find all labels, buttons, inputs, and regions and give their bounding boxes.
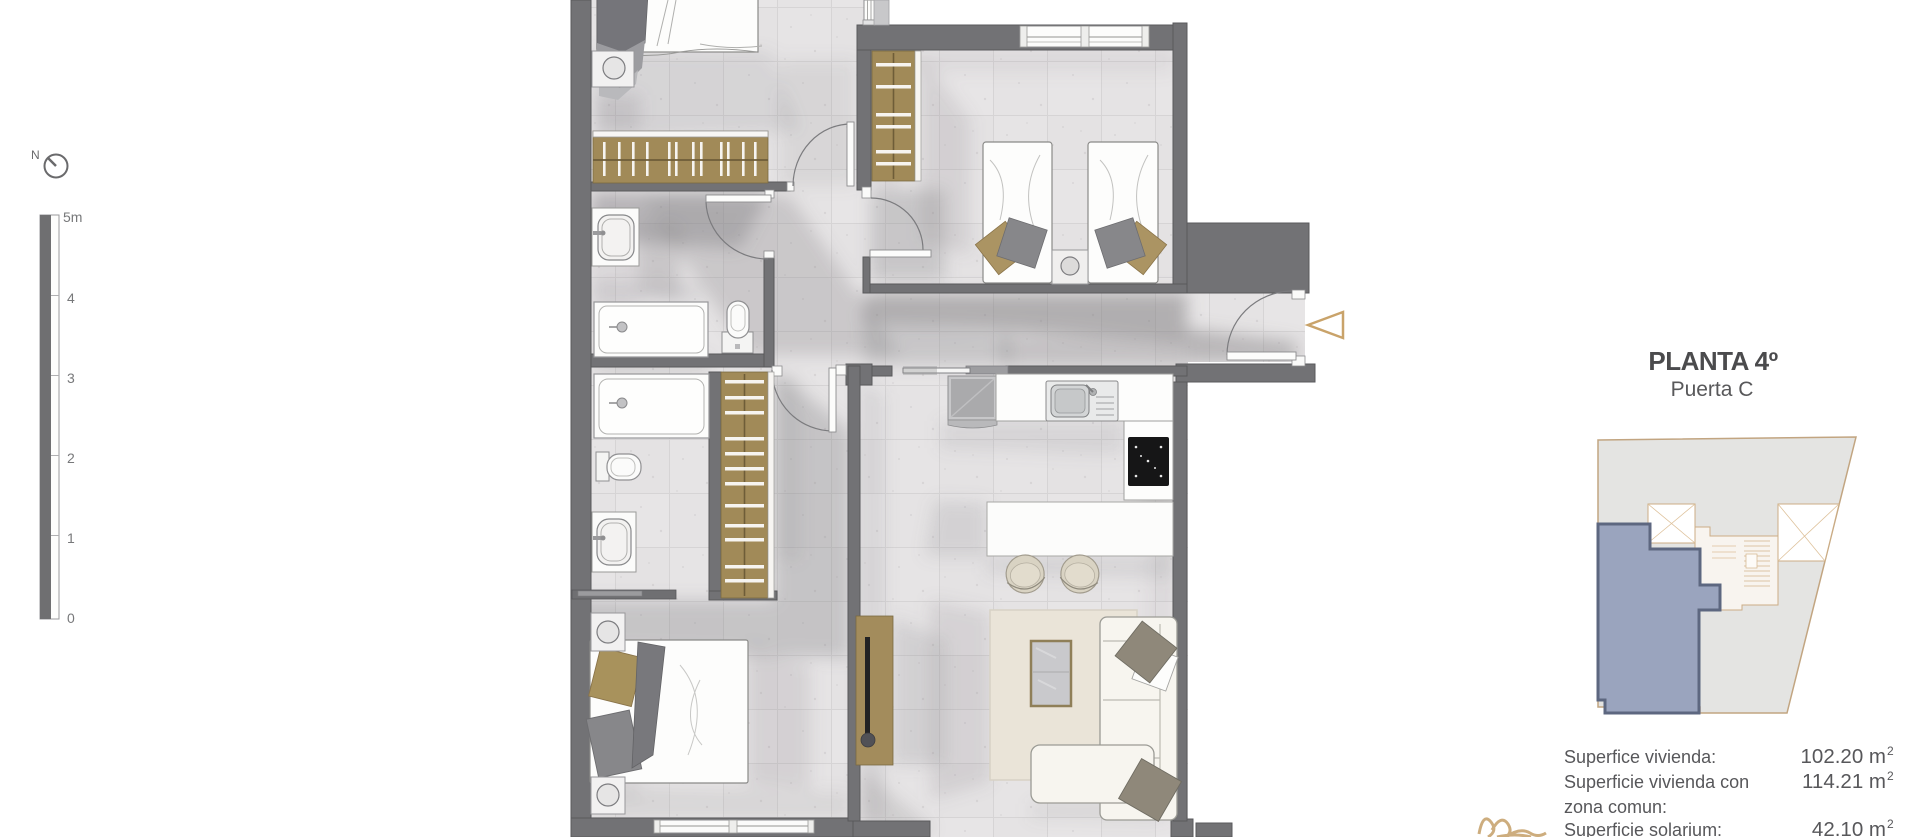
svg-text:Puerta C: Puerta C — [1671, 378, 1754, 401]
svg-text:42.10 m: 42.10 m — [1812, 818, 1886, 837]
svg-text:Superficie solarium:: Superficie solarium: — [1564, 820, 1722, 837]
svg-text:0: 0 — [67, 610, 75, 626]
svg-text:2: 2 — [1887, 769, 1894, 783]
svg-text:N: N — [31, 148, 40, 162]
svg-text:2: 2 — [1887, 817, 1894, 831]
svg-text:1: 1 — [67, 530, 75, 546]
svg-text:3: 3 — [67, 370, 75, 386]
svg-text:114.21 m: 114.21 m — [1802, 770, 1886, 793]
svg-text:2: 2 — [67, 450, 75, 466]
svg-text:Superficie vivienda con: Superficie vivienda con — [1564, 772, 1749, 792]
svg-text:4: 4 — [67, 290, 75, 306]
svg-text:PLANTA 4º: PLANTA 4º — [1648, 346, 1778, 376]
svg-text:zona comun:: zona comun: — [1564, 797, 1667, 817]
svg-text:2: 2 — [1887, 744, 1894, 758]
svg-text:5m: 5m — [63, 209, 82, 225]
svg-text:102.20 m: 102.20 m — [1801, 745, 1886, 768]
svg-text:Superfice vivienda:: Superfice vivienda: — [1564, 747, 1716, 767]
